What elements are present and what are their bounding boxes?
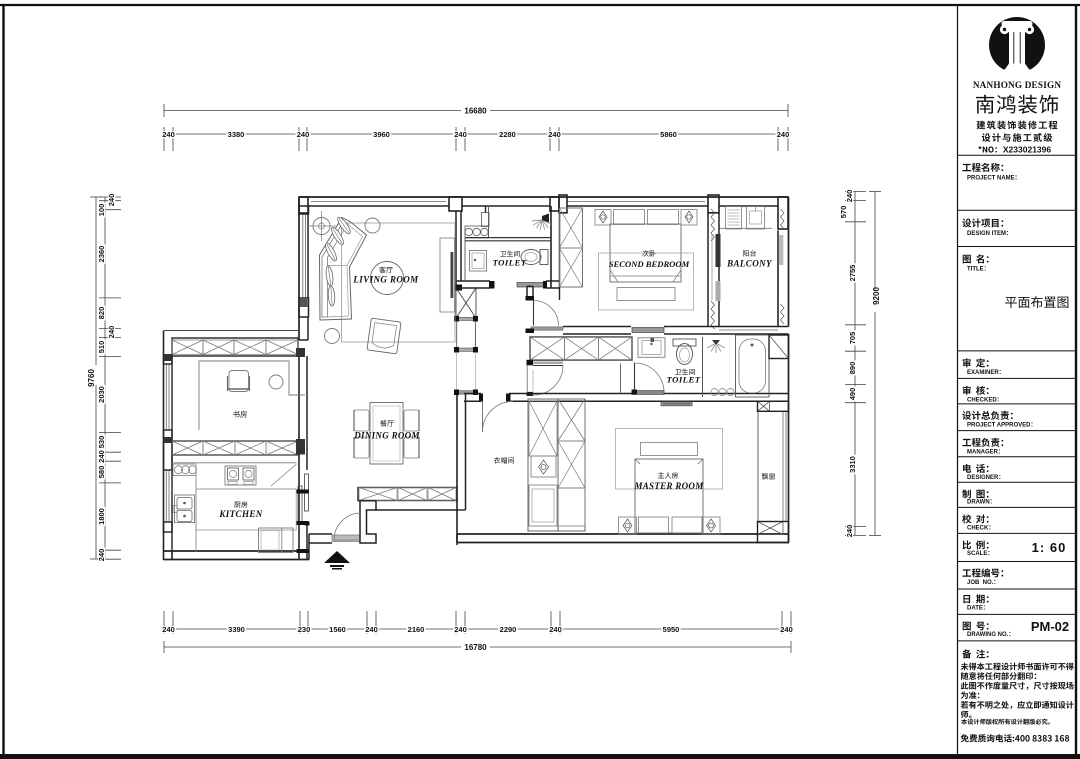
svg-text:820: 820 [97,307,106,320]
svg-text:5950: 5950 [663,625,680,634]
svg-text:PM-02: PM-02 [1031,619,1069,634]
svg-text:2755: 2755 [848,265,857,282]
svg-text:TOILET: TOILET [492,258,526,268]
svg-text:890: 890 [848,362,857,375]
svg-text:2360: 2360 [97,246,106,263]
svg-text:DRAWING NO.：: DRAWING NO.： [967,631,1014,638]
svg-text:510: 510 [97,341,106,354]
svg-text:240: 240 [107,194,116,207]
svg-text:2030: 2030 [97,386,106,403]
svg-text:240: 240 [845,190,854,203]
svg-text:MANAGER：: MANAGER： [967,449,1004,456]
svg-text:230: 230 [298,625,311,634]
svg-text:705: 705 [848,332,857,345]
svg-text:MASTER ROOM: MASTER ROOM [633,481,704,491]
svg-text:JOB NO.：: JOB NO.： [967,579,999,586]
svg-text:PROJECT NAME：: PROJECT NAME： [967,175,1021,182]
svg-text:DESIGNER：: DESIGNER： [967,474,1004,481]
svg-text:3960: 3960 [373,130,390,139]
svg-text:LIVING ROOM: LIVING ROOM [352,275,419,285]
svg-text:570: 570 [839,206,848,219]
svg-text:16680: 16680 [464,107,487,116]
svg-text:PROJECT APPROVED：: PROJECT APPROVED： [967,422,1036,429]
svg-text:5860: 5860 [660,130,677,139]
svg-text:240: 240 [365,625,378,634]
svg-text:240: 240 [454,625,467,634]
svg-text:240: 240 [297,130,310,139]
svg-text:240: 240 [97,549,106,562]
svg-text:240: 240 [107,326,116,339]
svg-text:240: 240 [780,625,793,634]
svg-text:16780: 16780 [464,643,487,652]
svg-text:1800: 1800 [97,508,106,525]
svg-text:CHECKED：: CHECKED： [967,397,1003,404]
svg-text:3390: 3390 [228,625,245,634]
svg-text:240: 240 [777,130,790,139]
svg-text:X233021396: X233021396 [1003,145,1051,155]
svg-text:240: 240 [162,625,175,634]
svg-text:TITLE：: TITLE： [967,266,990,273]
svg-text:1560: 1560 [329,625,346,634]
svg-text:EXAMINER：: EXAMINER： [967,369,1005,376]
svg-text:2160: 2160 [408,625,425,634]
svg-text:490: 490 [848,388,857,401]
svg-text:DESIGN ITEM：: DESIGN ITEM： [967,230,1012,237]
svg-text:9760: 9760 [87,369,96,387]
svg-text:240: 240 [162,130,175,139]
svg-text:CHECK：: CHECK： [967,525,994,532]
svg-text:530: 530 [97,436,106,449]
svg-text:580: 580 [97,466,106,479]
svg-text:100: 100 [97,204,106,217]
svg-text:240: 240 [97,450,106,463]
svg-text:2280: 2280 [499,130,516,139]
svg-text:2290: 2290 [500,625,517,634]
svg-text:SECOND BEDROOM: SECOND BEDROOM [609,259,690,269]
svg-text:SCALE：: SCALE： [967,550,993,557]
svg-text:240: 240 [548,130,561,139]
svg-text:DRAWN：: DRAWN： [967,499,996,506]
svg-text:DATE：: DATE： [967,605,989,612]
svg-text:9200: 9200 [872,287,881,305]
svg-text:240: 240 [454,130,467,139]
svg-text:1: 60: 1: 60 [1032,540,1067,555]
svg-text:DINING ROOM: DINING ROOM [353,431,420,441]
svg-text:TOILET: TOILET [666,375,700,385]
svg-text:KITCHEN: KITCHEN [218,509,262,519]
svg-text:3380: 3380 [228,130,245,139]
svg-text:BALCONY: BALCONY [726,259,773,269]
svg-text:3310: 3310 [848,456,857,473]
svg-text:240: 240 [845,525,854,538]
svg-text:NANHONG DESIGN: NANHONG DESIGN [973,80,1061,90]
svg-text:240: 240 [549,625,562,634]
